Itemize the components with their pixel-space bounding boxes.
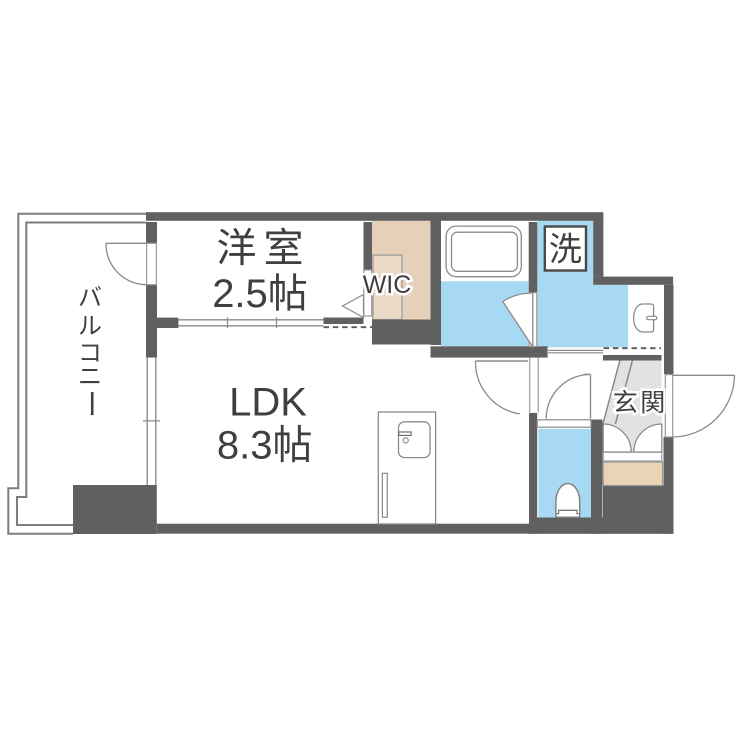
svg-text:ニ: ニ xyxy=(78,364,102,391)
svg-text:洗: 洗 xyxy=(549,231,582,268)
svg-text:玄関: 玄関 xyxy=(613,389,668,417)
svg-text:ル: ル xyxy=(78,313,102,340)
svg-text:2.5帖: 2.5帖 xyxy=(212,272,308,316)
svg-text:8.3帖: 8.3帖 xyxy=(217,423,313,467)
svg-text:ー: ー xyxy=(74,389,106,418)
svg-text:WIC: WIC xyxy=(363,271,412,299)
svg-text:バ: バ xyxy=(78,285,102,312)
svg-text:LDK: LDK xyxy=(229,381,307,425)
svg-text:洋室: 洋室 xyxy=(217,227,311,271)
